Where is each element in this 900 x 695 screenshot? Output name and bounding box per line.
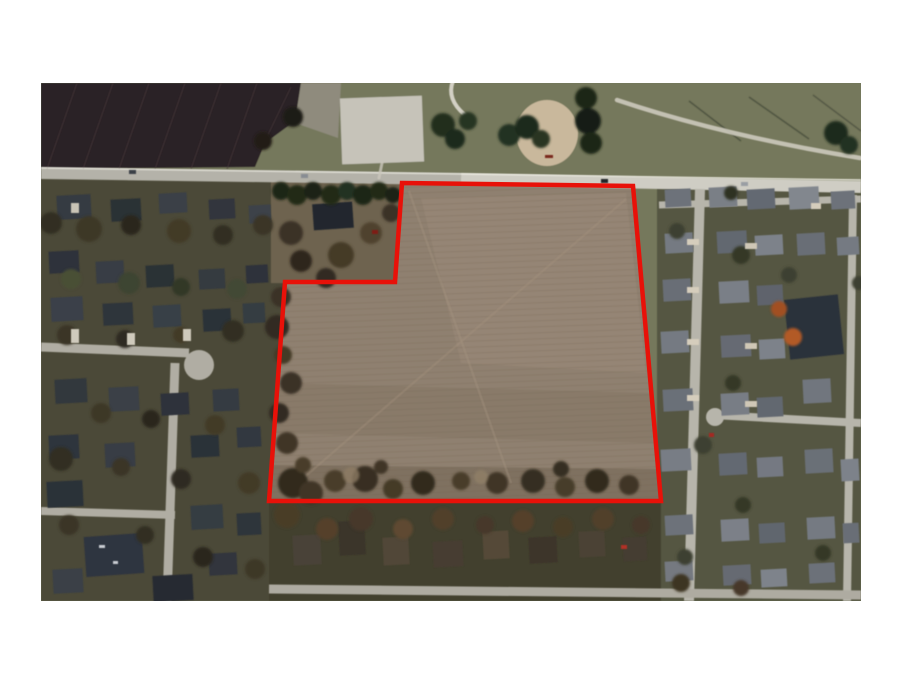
tree [59,515,79,535]
tree [265,315,289,339]
speck [601,179,608,183]
house-roof [840,459,859,482]
tree [672,574,690,592]
tree [840,136,858,154]
house-roof [108,386,139,412]
tree [349,507,373,531]
tree [213,225,233,245]
house-roof [796,232,825,255]
speck [183,329,191,341]
aerial-photo [41,83,861,601]
tree [121,215,141,235]
house-roof [660,448,691,472]
street [269,589,861,595]
house-roof [665,188,692,207]
house-roof [720,518,749,541]
house-roof [208,198,235,219]
house-roof [54,378,87,404]
house-roof [152,304,181,327]
house-roof [312,202,354,231]
house-roof [758,522,785,543]
speck [71,203,79,213]
house-roof [784,294,844,359]
tree [393,519,413,539]
speck [545,155,553,158]
house-roof [808,562,835,583]
house-roof [102,302,133,326]
speck [745,343,757,349]
cul-de-sac [184,350,214,380]
tree [619,475,639,495]
house-roof [52,568,83,594]
house-roof [806,516,835,539]
tree [452,472,470,490]
tree [167,219,191,243]
street [41,173,461,179]
tree [290,250,312,272]
tree [171,469,191,489]
speck [687,239,699,245]
tree [733,580,749,596]
tree [432,508,454,530]
tree [474,470,488,484]
tree [41,212,62,234]
speck [99,545,105,548]
tree [172,278,190,296]
tree [592,508,614,530]
speck [811,203,821,209]
house-roof [718,280,749,304]
speck [113,561,118,564]
satellite-scene [41,83,861,601]
tree [276,432,298,454]
concrete-pad [340,96,424,165]
cul-de-sac [706,408,724,426]
tree [771,301,787,317]
tree [735,497,751,513]
tree [227,279,247,299]
house-roof [198,268,225,289]
tree [280,372,302,394]
tree [316,268,336,288]
tree [142,410,160,428]
tree [328,242,354,268]
tree [360,222,382,244]
house-roof [528,536,557,563]
tree [553,517,573,537]
house-roof [664,514,693,535]
house-roof [432,540,463,568]
house-roof [212,388,239,411]
tree [193,547,213,567]
house-roof [242,302,265,323]
tree [575,108,601,134]
speck [745,243,757,249]
house-roof [660,330,689,353]
page-background [0,0,900,695]
house-roof [46,480,83,508]
tree [532,130,550,148]
house-roof [236,512,261,535]
tree [585,469,609,493]
tree [669,223,685,239]
tree [632,516,650,534]
tree [321,185,341,205]
house-roof [382,536,409,565]
tree [287,185,307,205]
house-roof [292,534,322,565]
speck [741,182,748,186]
tree [295,457,311,473]
house-roof [754,234,783,255]
tree [136,526,154,544]
speck [687,395,699,401]
tree [725,375,741,391]
tree [815,545,831,561]
tree [370,182,388,200]
tree [112,458,130,476]
tree [254,132,272,150]
tree [784,328,802,346]
house-roof [236,426,261,447]
house-roof [190,504,223,530]
tree [486,472,508,494]
house-roof [190,434,219,457]
tree [512,510,534,532]
house-roof [831,190,856,209]
tree [343,467,359,483]
tree [238,472,260,494]
speck [129,170,136,174]
tree [205,415,225,435]
tree [271,287,291,307]
speck [687,287,699,293]
tree [61,269,81,289]
house-roof [756,456,783,477]
tree [374,460,388,474]
tree [476,516,494,534]
tree [575,87,597,109]
tree [353,185,373,205]
tree [274,346,292,364]
street [41,347,189,353]
speck [301,174,308,178]
tree [283,107,303,127]
house-roof [842,523,859,544]
house-roof [758,338,785,359]
tree [459,112,477,130]
tree [49,447,73,471]
tree [253,215,273,235]
tree [274,502,300,528]
tree [269,403,289,423]
speck [709,433,714,437]
tree [555,477,575,497]
house-roof [718,452,747,475]
tree [316,518,338,540]
house-roof [152,574,193,601]
tree [279,221,303,245]
tree [580,132,602,154]
house-roof [160,392,189,415]
house-roof [802,378,831,403]
tree [411,471,435,495]
house-roof [158,192,187,213]
speck [127,333,135,345]
tree [222,320,244,342]
tree [324,470,346,492]
house-roof [804,448,833,473]
speck [71,329,79,343]
house-roof [145,264,174,287]
house-roof [50,296,83,322]
speck [621,545,627,549]
tree [91,403,111,423]
house-roof [837,236,860,255]
tree [781,267,797,283]
house-roof [482,530,509,559]
speck [745,401,757,407]
tree [694,436,712,454]
house-roof [578,530,605,557]
house-roof [84,533,145,577]
tree [245,559,265,579]
tree [724,186,738,200]
tree [118,272,140,294]
tree [677,549,693,565]
tree [304,182,322,200]
speck [687,339,699,345]
street [41,511,175,515]
house-roof [746,188,775,209]
tree [445,129,465,149]
tree [76,216,102,242]
tree [383,479,403,499]
house-roof [756,396,783,417]
tree [553,461,569,477]
house-roof [246,264,269,283]
speck [372,230,378,234]
tree [521,469,545,493]
house-roof [761,568,788,587]
